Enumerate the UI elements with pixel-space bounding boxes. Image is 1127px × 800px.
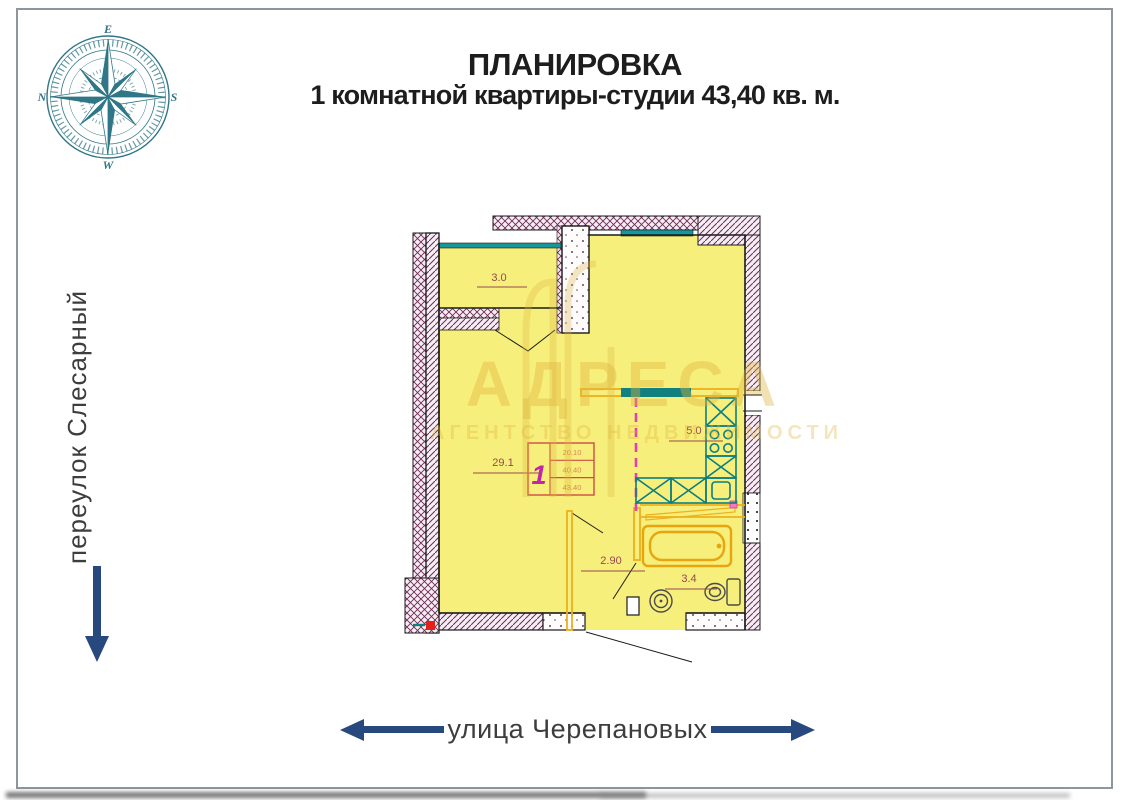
street-label-bottom: улица Черепановых [444, 714, 711, 745]
left-arrow-icon [340, 719, 444, 741]
wall-stub [627, 597, 639, 615]
stamp-flat-number: 1 [531, 460, 546, 490]
scan-artifact [6, 792, 646, 798]
street-label-bottom-row: улица Черепановых [340, 714, 815, 745]
scan-artifact [600, 793, 1070, 798]
down-arrow-icon [85, 566, 109, 666]
compass-letter-top: E [103, 22, 112, 36]
area-hall: 2.90 [600, 555, 621, 567]
right-arrow-icon [711, 719, 815, 741]
area-bathroom: 3.4 [681, 573, 696, 585]
stamp-living-area: 20.10 [563, 448, 582, 457]
flyer-page: ПЛАНИРОВКА 1 комнатной квартиры-студии 4… [0, 0, 1127, 800]
stamp-total-area: 43.40 [563, 483, 582, 492]
title-line1: ПЛАНИРОВКА [170, 48, 980, 81]
compass-letter-left: N [37, 90, 48, 104]
title-line2: 1 комнатной квартиры-студии 43,40 кв. м. [170, 81, 980, 110]
floorplan-drawing: 3.0 29.1 5.0 2.90 3.4 1 20.10 40.40 43.4… [393, 193, 773, 663]
area-living: 29.1 [492, 457, 513, 469]
stamp-area-no-balcony: 40.40 [563, 466, 582, 475]
compass-rose-icon: E S W N [33, 22, 183, 172]
page-title: ПЛАНИРОВКА 1 комнатной квартиры-студии 4… [170, 48, 980, 111]
radiator-marker [426, 621, 435, 630]
area-kitchen: 5.0 [686, 425, 701, 437]
street-label-left: переулок Слесарный [62, 282, 106, 572]
compass-letter-right: S [171, 90, 178, 104]
compass-letter-bottom: W [103, 158, 115, 172]
area-balcony: 3.0 [491, 272, 506, 284]
counter-teal-bar [621, 388, 691, 397]
